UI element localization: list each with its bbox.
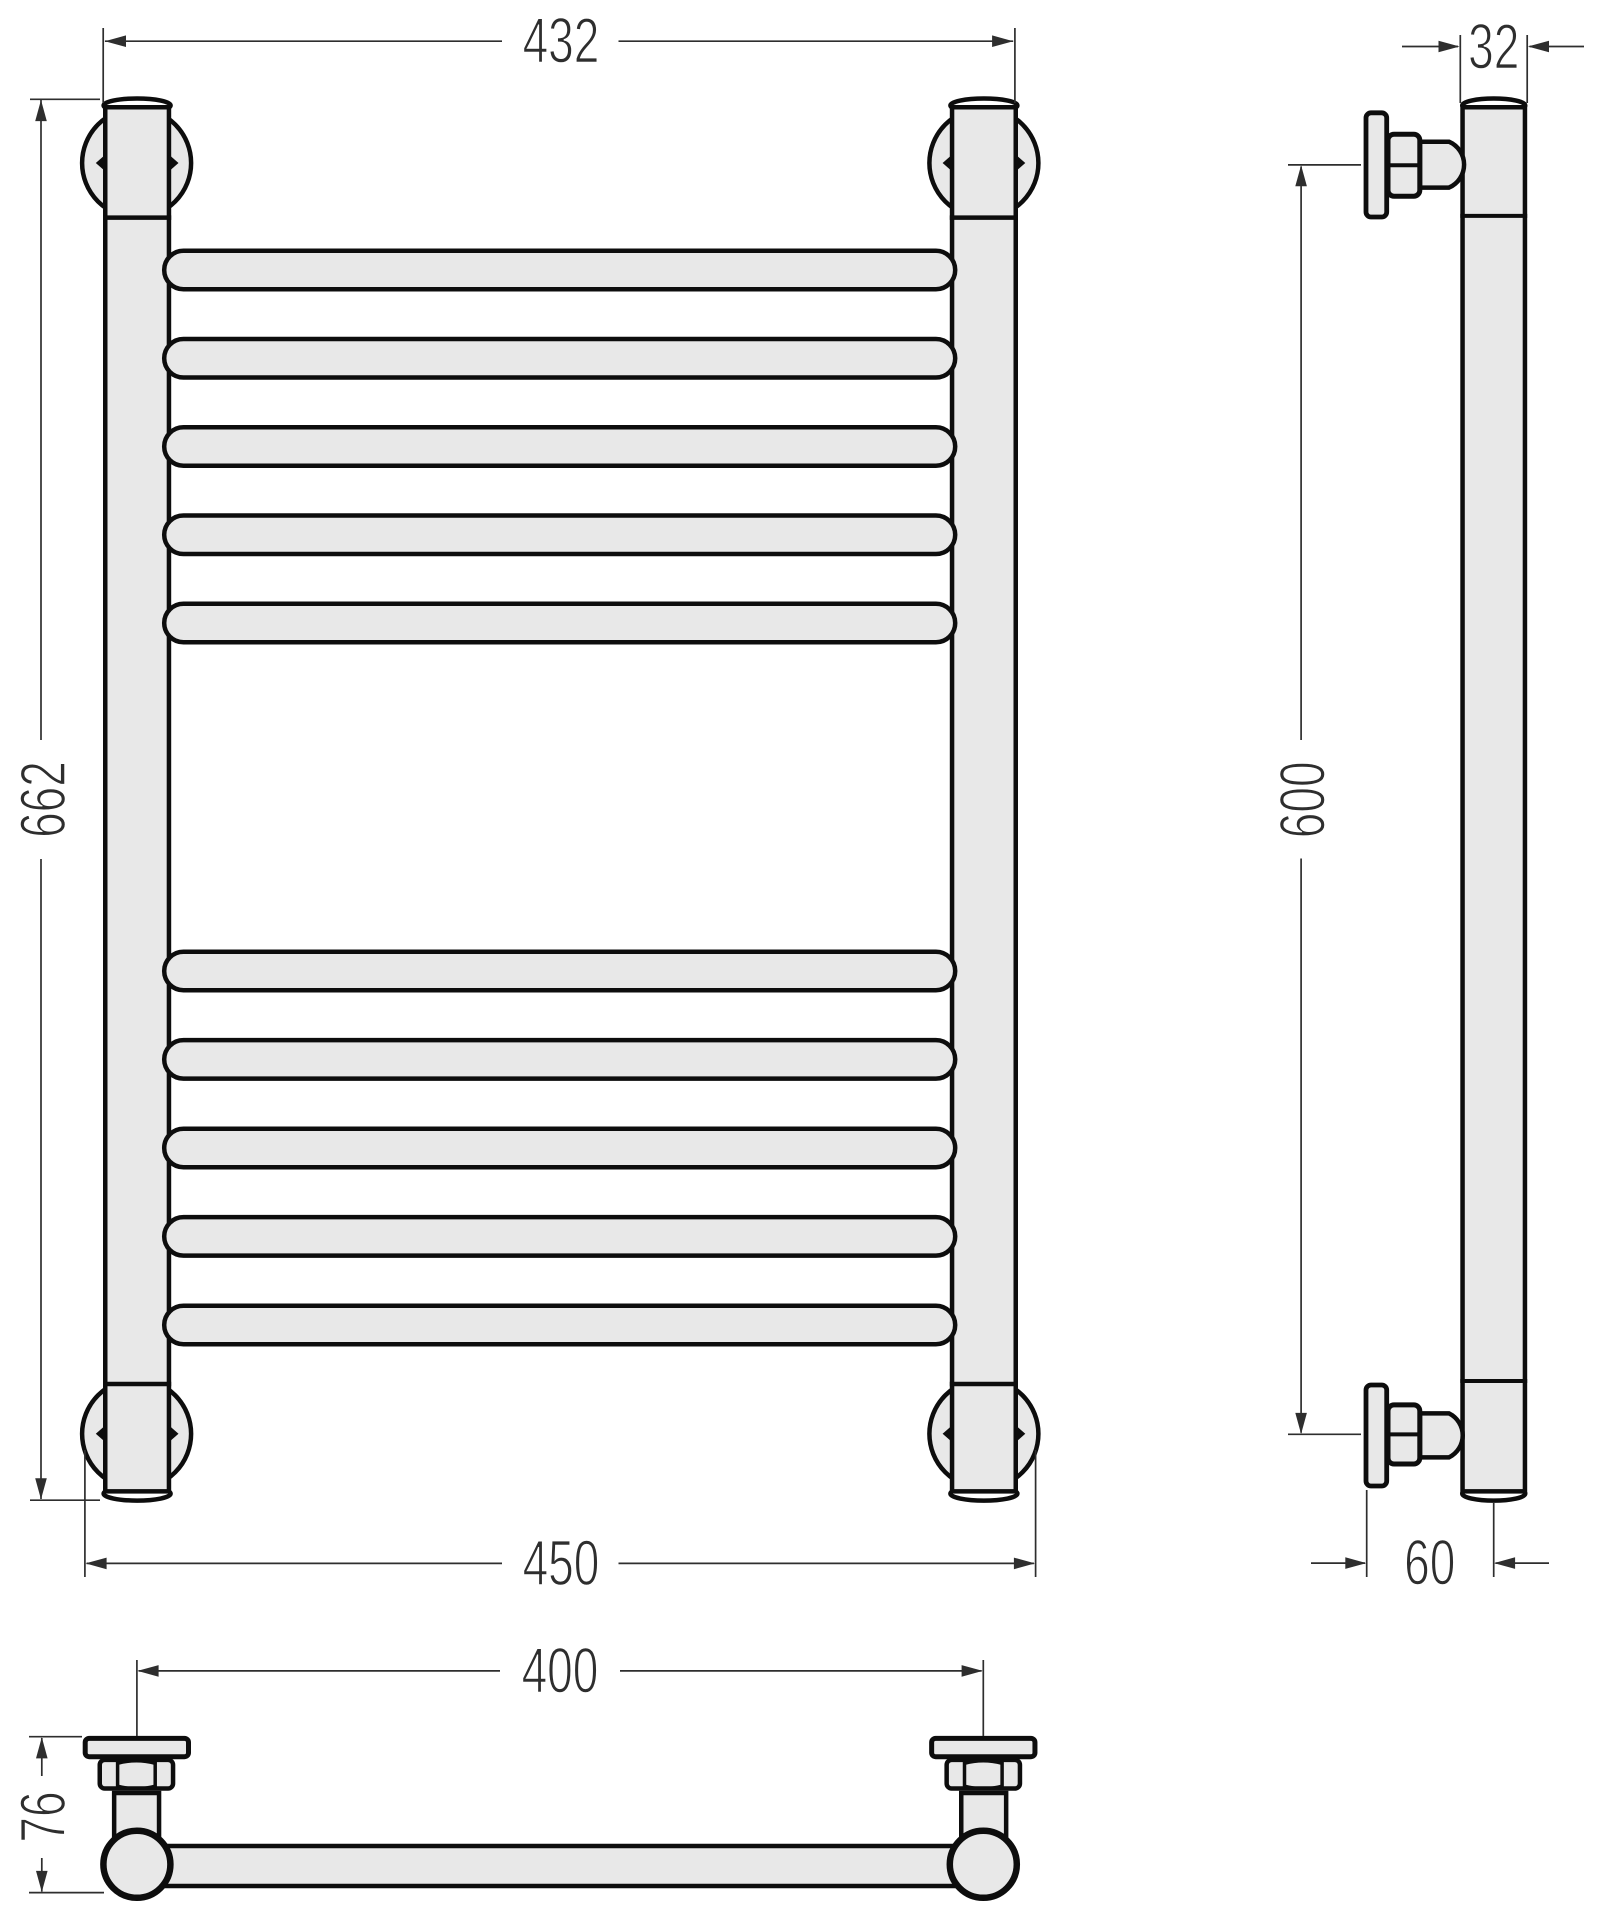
svg-text:76: 76 (8, 1791, 79, 1842)
svg-text:450: 450 (523, 1528, 600, 1599)
svg-text:662: 662 (7, 761, 78, 838)
svg-text:60: 60 (1404, 1527, 1455, 1598)
svg-text:32: 32 (1468, 11, 1519, 82)
svg-text:600: 600 (1267, 761, 1338, 838)
svg-text:432: 432 (523, 5, 600, 76)
svg-text:400: 400 (522, 1635, 599, 1706)
